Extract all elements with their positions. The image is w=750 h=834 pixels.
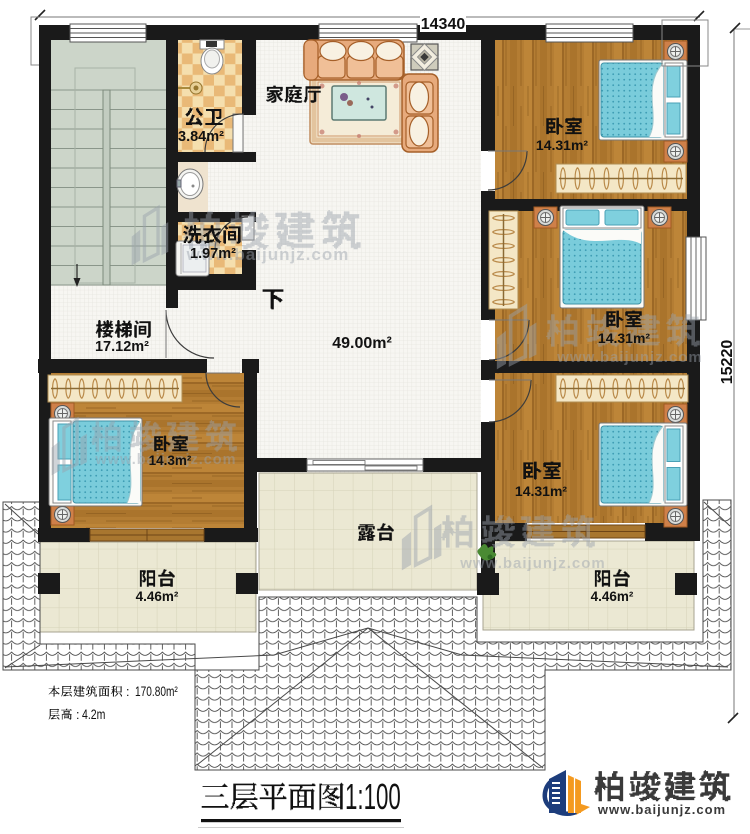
svg-text:17.12m²: 17.12m² [95,339,149,355]
svg-text::: : [76,708,79,722]
svg-text:4.46m²: 4.46m² [591,589,634,604]
svg-text:www.baijunjz.com: www.baijunjz.com [459,555,605,572]
svg-text:14.3m²: 14.3m² [149,453,192,468]
svg-text:49.00m²: 49.00m² [332,335,392,352]
svg-text:4.2m: 4.2m [82,707,105,723]
svg-text:14.31m²: 14.31m² [598,330,650,346]
svg-text::: : [126,685,129,699]
svg-text:15220: 15220 [719,340,736,385]
svg-text:14.31m²: 14.31m² [515,483,567,499]
svg-text:14.31m²: 14.31m² [536,137,588,153]
svg-text:3.84m²: 3.84m² [178,129,224,145]
svg-text:14340: 14340 [421,16,466,33]
svg-text:www.baijunjz.com: www.baijunjz.com [556,349,702,366]
svg-text:4.46m²: 4.46m² [136,589,179,604]
svg-text:www.baijunjz.com: www.baijunjz.com [597,802,726,817]
svg-text:1.97m²: 1.97m² [190,246,236,262]
svg-text:170.80m²: 170.80m² [135,684,178,700]
svg-text:1:100: 1:100 [345,778,401,818]
